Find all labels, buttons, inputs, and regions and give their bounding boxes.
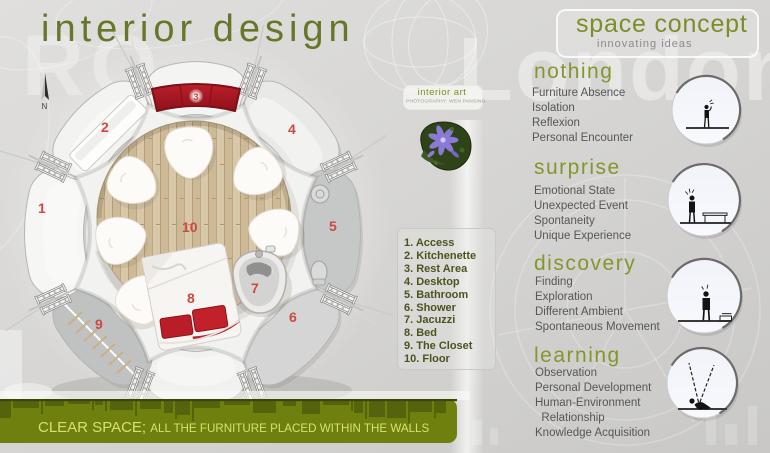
svg-text:3: 3 — [194, 92, 199, 102]
svg-text:2: 2 — [101, 119, 109, 135]
svg-text:N: N — [42, 102, 48, 111]
svg-text:10: 10 — [182, 219, 198, 235]
svg-text:7: 7 — [251, 280, 259, 296]
svg-text:4: 4 — [288, 121, 296, 137]
svg-text:1: 1 — [38, 200, 46, 216]
svg-text:8: 8 — [187, 290, 195, 306]
svg-text:6: 6 — [289, 309, 297, 325]
svg-text:9: 9 — [95, 316, 103, 332]
svg-text:5: 5 — [329, 218, 337, 234]
